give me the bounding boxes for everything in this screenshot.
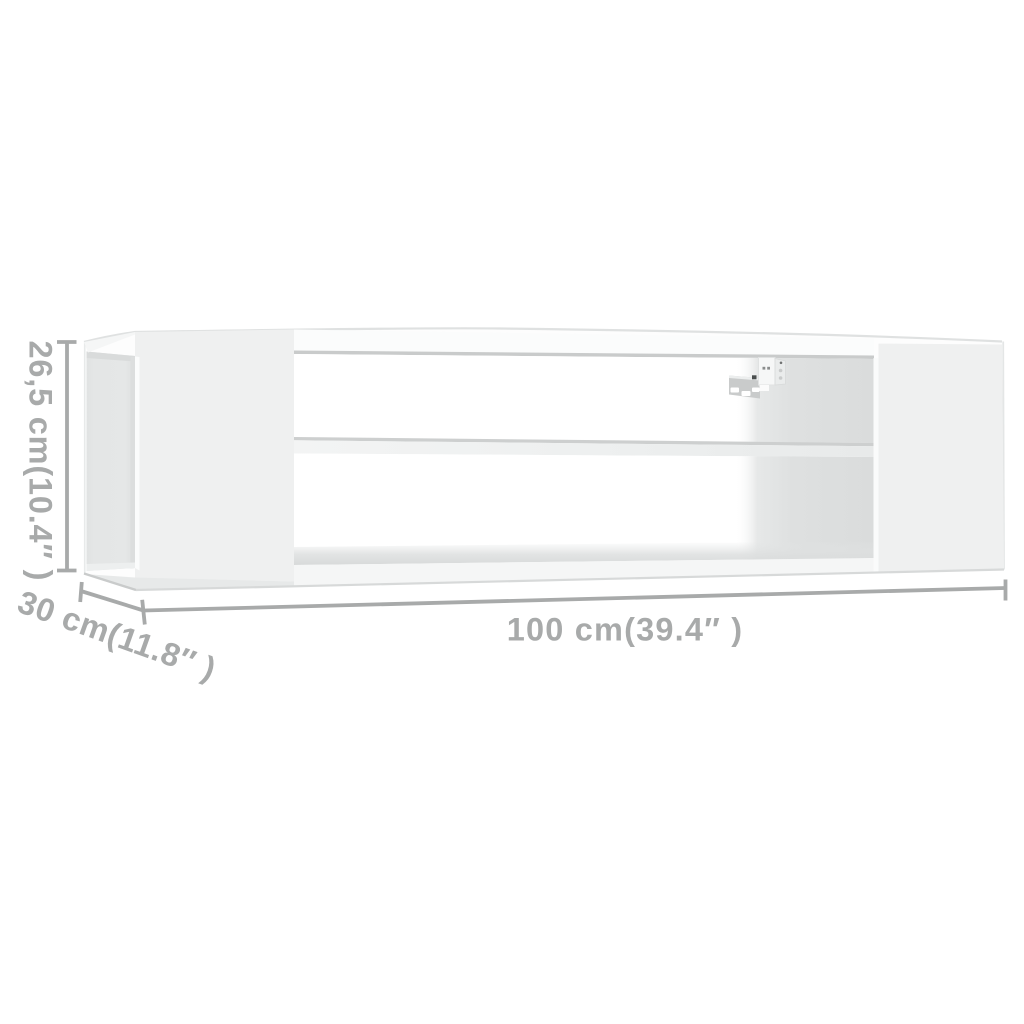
svg-text:100 cm(39.4″ ): 100 cm(39.4″ ) [507,612,744,648]
svg-text:26,5 cm(10.4″ ): 26,5 cm(10.4″ ) [23,341,59,582]
